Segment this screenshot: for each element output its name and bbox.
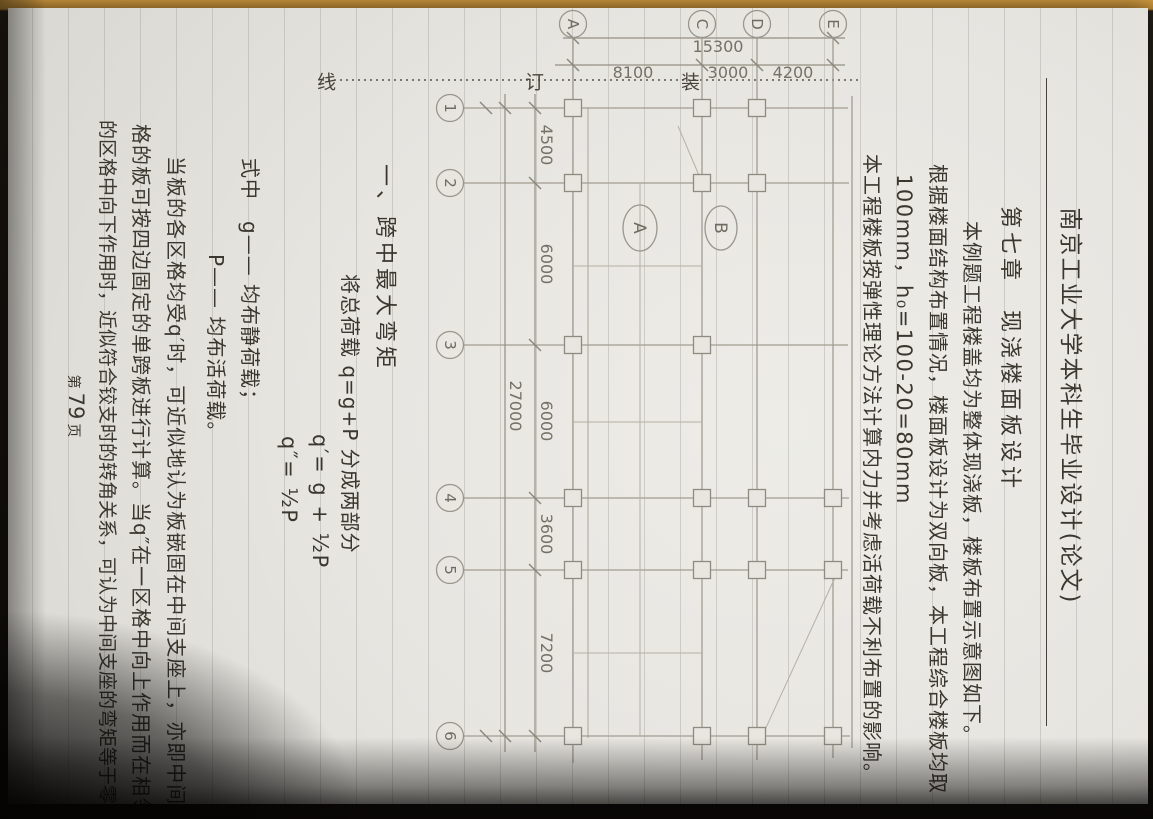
- dim-8100: 8100: [613, 63, 654, 82]
- grid-axis-lines: [464, 38, 852, 763]
- page-number-prefix: 第: [65, 375, 81, 389]
- paragraph-line-2: 格的板可按四边固定的单跨板进行计算。当q″在一区格中向上作用而在相邻: [128, 124, 157, 804]
- secondary-beam-lines: [573, 126, 838, 745]
- col-axis-labels: 1 2 3 4 5 6: [441, 103, 459, 741]
- intro-line-2: 根据楼面结构布置情况，楼面板设计为双向板，本工程综合楼板均取: [925, 164, 954, 794]
- panel-label-B: B: [710, 222, 730, 234]
- formula-q-double-prime: q″= ½P: [277, 436, 301, 523]
- binding-char-xian: 线: [316, 68, 338, 95]
- side-dimension-chain: 4500 6000 6000 3600 7200 27000: [506, 125, 556, 674]
- chapter-title: 第七章 现浇楼面板设计: [996, 206, 1028, 492]
- thesis-page: 南京工业大学本科生毕业设计(论文) 第七章 现浇楼面板设计 本例题工程楼盖均为整…: [8, 8, 1148, 804]
- top-dimension-chain: 15300 8100 3000 4200: [613, 37, 814, 82]
- page-number-suffix: 页: [65, 423, 81, 437]
- section-intro: 将总荷载 q=g+P 分成两部分: [337, 274, 366, 554]
- dim-total-15300: 15300: [693, 37, 744, 56]
- row-label-A: A: [564, 19, 582, 30]
- col-label-4: 4: [441, 493, 459, 503]
- dim-4200: 4200: [773, 63, 814, 82]
- dim-3600: 3600: [537, 514, 556, 555]
- col-axis-bubbles: [437, 95, 464, 750]
- panel-labels: A B: [623, 205, 737, 251]
- col-label-3: 3: [441, 340, 459, 350]
- page-number-value: 79: [64, 389, 88, 424]
- row-label-D: D: [748, 18, 766, 30]
- photo-of-thesis-page: 南京工业大学本科生毕业设计(论文) 第七章 现浇楼面板设计 本例题工程楼盖均为整…: [0, 0, 1153, 819]
- row-axis-bubbles: [560, 11, 847, 38]
- where-line-p: P—— 均布活荷载。: [203, 254, 232, 442]
- panel-label-A: A: [629, 222, 649, 234]
- intro-line-3: 100mm，h₀=100-20=80mm: [890, 174, 920, 505]
- dim-4500: 4500: [537, 125, 556, 166]
- dimension-tick-marks: [480, 32, 839, 742]
- dim-total-27000: 27000: [506, 381, 525, 432]
- paragraph-line-1: 当板的各区格均受q′时，可近似地认为板嵌固在中间支座上，亦即中间区: [163, 156, 192, 804]
- dim-6000-b: 6000: [537, 401, 556, 442]
- paragraph-line-3: 的区格中向下作用时，近似符合铰支时的转角关系，可认为中间支座的弯矩等于零，亦即: [95, 120, 122, 804]
- col-label-1: 1: [441, 103, 459, 113]
- dim-3000: 3000: [708, 63, 749, 82]
- dim-7200: 7200: [537, 633, 556, 674]
- row-axis-labels: E D C A: [564, 18, 842, 30]
- header-underline: [1046, 78, 1047, 726]
- page-number: 第79页: [64, 375, 88, 438]
- dimension-chain-lines: [505, 38, 845, 752]
- column-squares: [565, 100, 842, 745]
- row-label-C: C: [693, 19, 711, 29]
- intro-line-4: 本工程楼板按弹性理论方法计算内力并考虑活荷载不利布置的影响。: [859, 154, 888, 784]
- where-line-g: 式中 g—— 均布静荷载；: [237, 158, 266, 410]
- formula-q-prime: q′= g + ½P: [308, 434, 332, 569]
- col-label-2: 2: [441, 178, 459, 188]
- binding-char-zhuang: 装: [680, 68, 702, 95]
- dim-6000-a: 6000: [537, 244, 556, 285]
- intro-line-1: 本例题工程楼盖均为整体现浇板，楼板布置示意图如下。: [959, 221, 988, 746]
- col-label-6: 6: [441, 731, 459, 741]
- section-title: 一、跨中最大弯矩: [371, 164, 403, 372]
- binding-char-ding: 订: [524, 68, 546, 95]
- page-header-title: 南京工业大学本科生毕业设计(论文): [1056, 208, 1090, 605]
- col-label-5: 5: [441, 565, 459, 575]
- row-label-E: E: [824, 19, 842, 28]
